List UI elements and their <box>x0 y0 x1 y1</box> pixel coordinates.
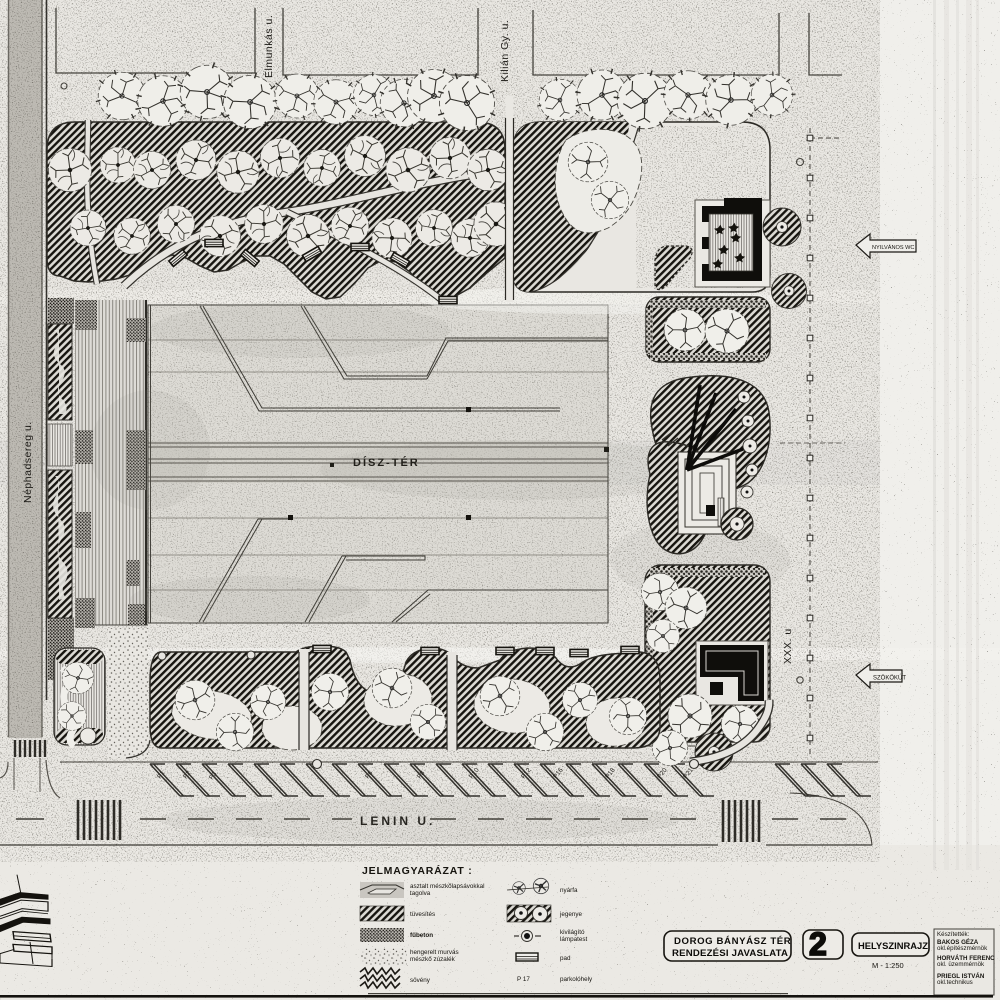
svg-text:okl.építészmérnök: okl.építészmérnök <box>937 945 988 952</box>
svg-text:asztalt mészkőlapsávokkal: asztalt mészkőlapsávokkal <box>410 883 485 890</box>
svg-text:RENDEZÉSI JAVASLATA: RENDEZÉSI JAVASLATA <box>672 947 788 959</box>
svg-text:tagolva: tagolva <box>410 890 431 897</box>
svg-text:JELMAGYARÁZAT :: JELMAGYARÁZAT : <box>362 864 473 877</box>
svg-text:sövény: sövény <box>410 977 431 984</box>
svg-text:fűbeton: fűbeton <box>410 932 433 939</box>
svg-text:Néphadsereg u.: Néphadsereg u. <box>22 421 34 503</box>
svg-text:tüvesítés: tüvesítés <box>410 911 435 918</box>
svg-text:M - 1:250: M - 1:250 <box>872 961 904 970</box>
svg-text:Készítették:: Készítették: <box>937 931 970 938</box>
svg-text:parkolóhely: parkolóhely <box>560 976 593 983</box>
svg-text:pad: pad <box>560 955 571 962</box>
svg-text:2: 2 <box>809 926 827 962</box>
svg-text:kivilágító: kivilágító <box>560 929 585 936</box>
svg-text:HELYSZINRAJZ: HELYSZINRAJZ <box>858 940 928 951</box>
svg-text:okl. üzemmérnök: okl. üzemmérnök <box>937 961 985 968</box>
svg-text:Kilián Gy. u.: Kilián Gy. u. <box>499 20 511 82</box>
svg-text:lámpatest: lámpatest <box>560 936 588 943</box>
svg-text:NYILVÁNOS WC: NYILVÁNOS WC <box>872 244 914 251</box>
svg-text:hengerelt murvás: hengerelt murvás <box>410 949 459 956</box>
svg-text:nyárfa: nyárfa <box>560 887 578 894</box>
svg-text:XXX. u: XXX. u <box>782 628 794 664</box>
svg-text:SZÖKÖKÚT: SZÖKÖKÚT <box>873 674 906 681</box>
svg-text:P 17: P 17 <box>517 976 530 983</box>
svg-text:DOROG BÁNYÁSZ TÉR: DOROG BÁNYÁSZ TÉR <box>674 935 791 947</box>
svg-text:okl.technikus: okl.technikus <box>937 979 973 986</box>
svg-text:mészkő zúzalék: mészkő zúzalék <box>410 956 456 963</box>
svg-text:Élmunkás u.: Élmunkás u. <box>262 15 275 78</box>
svg-text:jegenye: jegenye <box>559 911 583 918</box>
